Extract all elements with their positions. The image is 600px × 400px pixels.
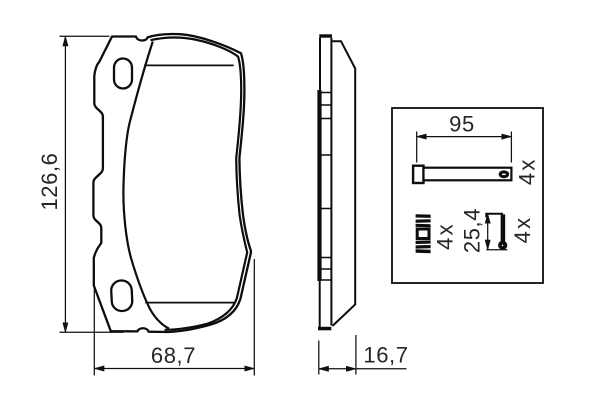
svg-text:4x: 4x [433, 222, 458, 250]
svg-text:4x: 4x [515, 157, 540, 185]
svg-text:16,7: 16,7 [363, 343, 408, 368]
svg-text:95: 95 [449, 111, 475, 136]
svg-text:126,6: 126,6 [37, 152, 62, 210]
svg-text:4x: 4x [510, 216, 535, 244]
svg-text:25,4: 25,4 [460, 208, 485, 253]
svg-text:68,7: 68,7 [151, 343, 196, 368]
